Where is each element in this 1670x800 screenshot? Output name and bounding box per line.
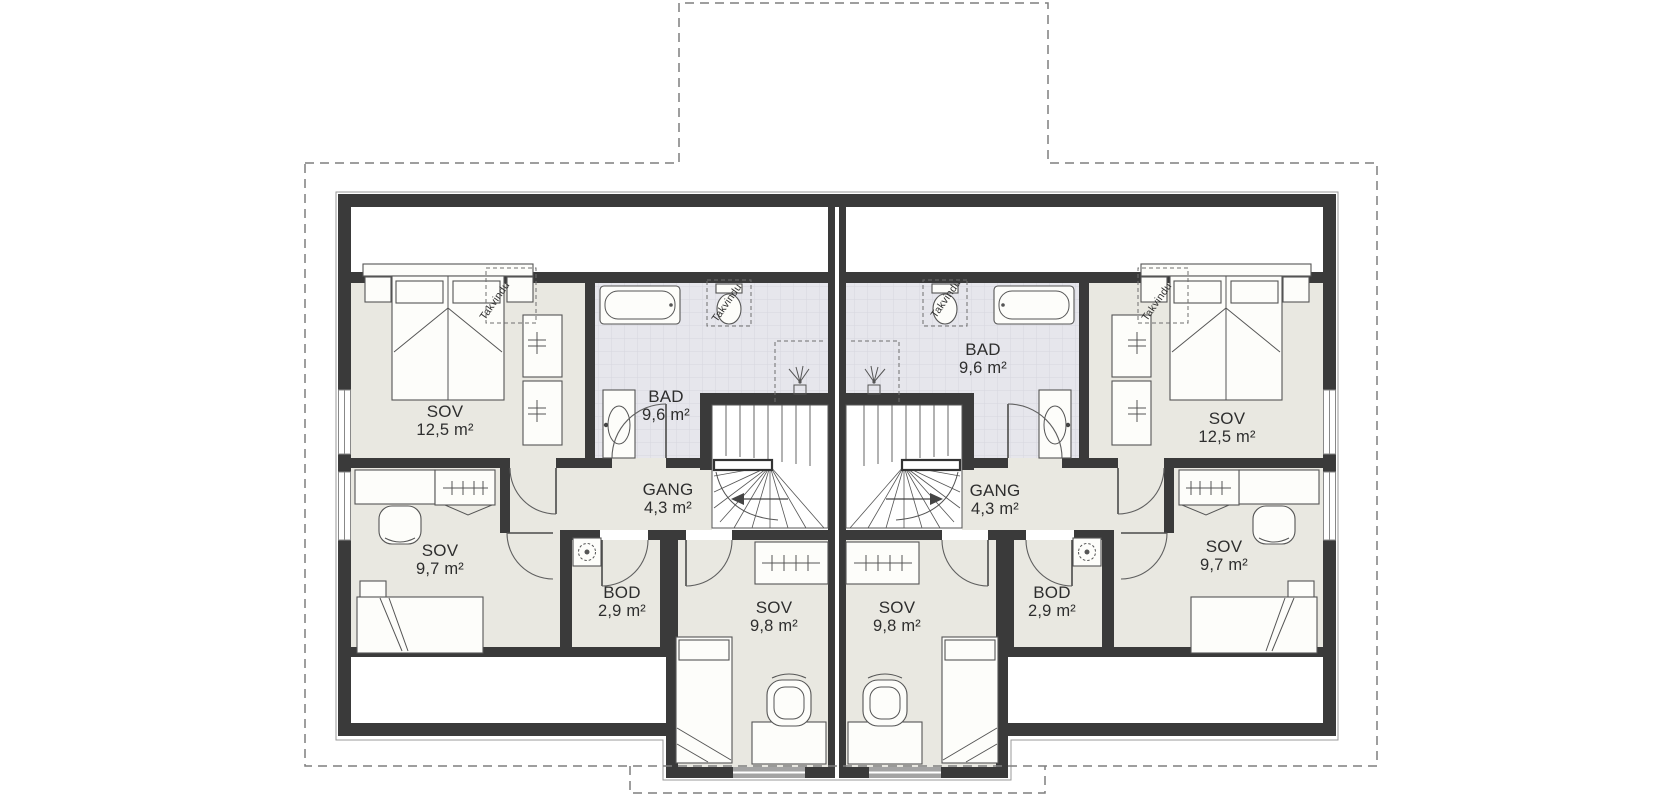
floor-plan: SOV12,5 m²BAD9,6 m²GANG4,3 m²SOV9,7 m²BO…	[0, 0, 1670, 800]
unit-right	[837, 192, 1338, 780]
unit-left	[336, 192, 837, 780]
floor-plan-drawing	[0, 0, 1670, 800]
